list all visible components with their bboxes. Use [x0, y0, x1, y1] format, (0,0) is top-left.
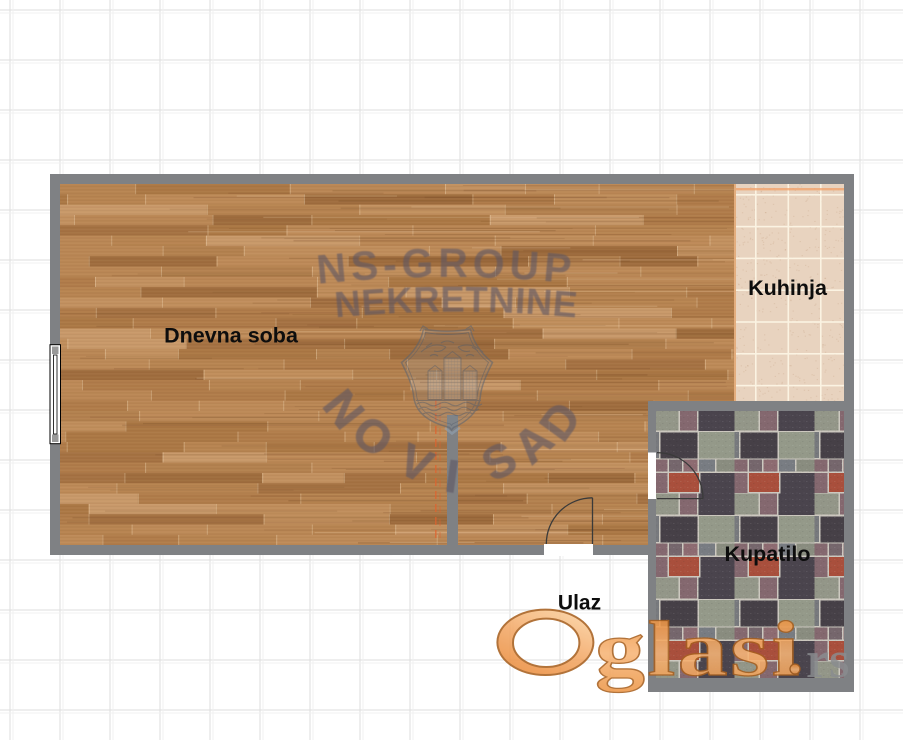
svg-text:rs: rs: [806, 632, 849, 689]
svg-text:Kuhinja: Kuhinja: [748, 276, 828, 300]
svg-text:glasi: glasi: [595, 606, 802, 692]
svg-text:Dnevna soba: Dnevna soba: [164, 324, 299, 348]
svg-text:NEKRETNINE: NEKRETNINE: [333, 279, 580, 326]
svg-text:Kupatilo: Kupatilo: [725, 542, 811, 566]
